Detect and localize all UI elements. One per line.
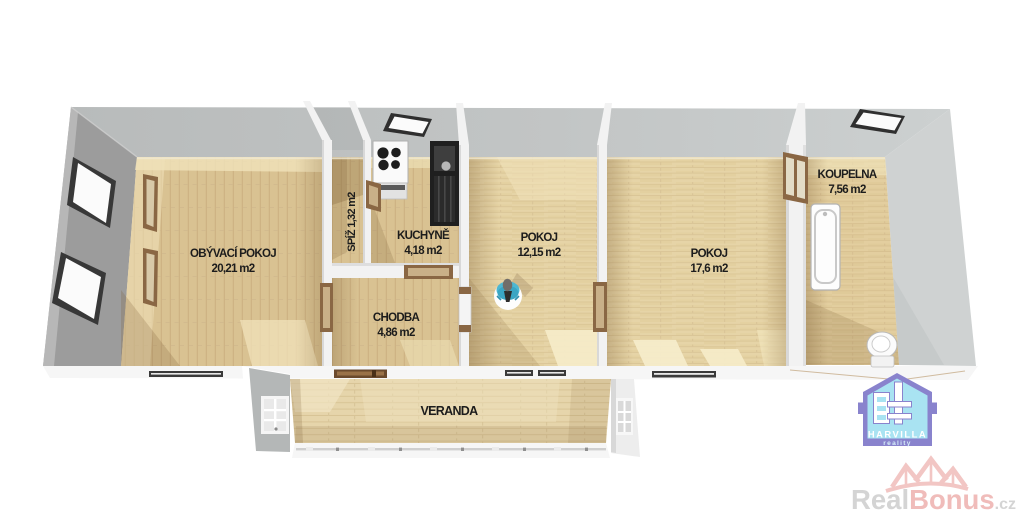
svg-text:17,6 m2: 17,6 m2	[690, 263, 728, 275]
svg-text:POKOJ: POKOJ	[691, 248, 728, 260]
svg-text:KUCHYNĚ: KUCHYNĚ	[397, 229, 450, 242]
svg-text:20,21 m2: 20,21 m2	[212, 263, 255, 275]
svg-text:12,15 m2: 12,15 m2	[518, 247, 561, 259]
svg-text:SPÍŽ 1,32 m2: SPÍŽ 1,32 m2	[345, 192, 358, 252]
svg-text:reality: reality	[883, 440, 912, 447]
svg-text:KOUPELNA: KOUPELNA	[818, 169, 877, 181]
svg-text:RealBonus.cz: RealBonus.cz	[851, 484, 1016, 515]
svg-text:POKOJ: POKOJ	[521, 232, 558, 244]
svg-text:OBÝVACÍ POKOJ: OBÝVACÍ POKOJ	[190, 247, 276, 260]
svg-text:7,56 m2: 7,56 m2	[828, 184, 866, 196]
svg-text:4,86 m2: 4,86 m2	[377, 327, 415, 339]
svg-text:VERANDA: VERANDA	[421, 404, 479, 418]
svg-text:4,18 m2: 4,18 m2	[404, 245, 442, 257]
svg-text:HARVILLA: HARVILLA	[868, 429, 927, 440]
svg-text:CHODBA: CHODBA	[373, 312, 420, 324]
